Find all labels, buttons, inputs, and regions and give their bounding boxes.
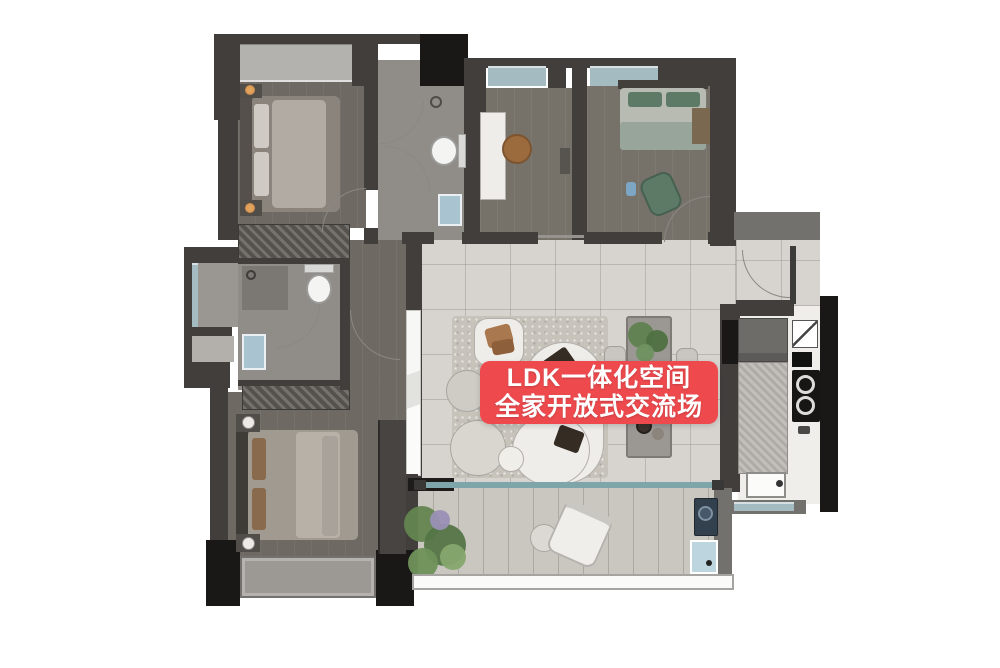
wall <box>736 300 794 316</box>
master-bed-pillow <box>252 488 266 530</box>
master-bed-throw <box>322 436 338 536</box>
wall <box>572 64 587 240</box>
wall <box>340 262 350 390</box>
table-lamp <box>245 85 255 95</box>
study-window <box>488 66 546 86</box>
mirror-panel <box>406 310 421 476</box>
wall <box>364 228 378 244</box>
toilet-tank <box>304 264 334 273</box>
master-bed-headboard <box>236 428 248 542</box>
second-bed-pillow <box>254 104 269 148</box>
fridge <box>738 318 788 362</box>
burner <box>796 375 815 394</box>
desk <box>480 112 506 200</box>
ac-platform-window <box>192 263 198 327</box>
sliding-door-track <box>424 482 716 488</box>
wall <box>402 232 434 244</box>
kitchen-counter <box>738 362 788 474</box>
table-lamp <box>242 416 255 429</box>
master-bay-window <box>240 556 376 598</box>
wall <box>184 362 230 388</box>
faucet <box>706 560 712 566</box>
wall <box>184 327 232 336</box>
balcony-plant <box>430 510 450 530</box>
track-cap <box>414 480 426 490</box>
wall <box>210 388 228 544</box>
bathroom-sink <box>438 194 462 226</box>
shelf <box>560 148 570 174</box>
wall <box>214 34 240 120</box>
dinnerware <box>652 428 664 440</box>
wall <box>708 232 736 244</box>
second-bed-pillow <box>254 152 269 196</box>
guest-nightstand <box>692 108 710 144</box>
toilet <box>306 274 332 304</box>
label-banner: LDK一体化空间 全家开放式交流场 <box>480 361 718 424</box>
hallway-cabinet <box>378 420 406 554</box>
shower-head-icon <box>246 270 256 280</box>
toilet <box>430 136 458 166</box>
microwave <box>792 352 812 367</box>
slippers <box>626 182 636 196</box>
washer-door <box>698 506 713 521</box>
balcony-plant <box>440 544 466 570</box>
bathroom-sink <box>242 334 266 370</box>
master-bedroom-wardrobe <box>242 384 350 410</box>
ac-platform <box>192 263 238 327</box>
balcony-railing <box>412 574 734 590</box>
faucet <box>776 480 783 487</box>
wall <box>464 58 480 240</box>
shower-head-icon <box>430 96 442 108</box>
wall <box>462 232 538 244</box>
wall <box>584 232 662 244</box>
burner <box>796 396 815 415</box>
wall <box>364 40 378 190</box>
side-table <box>498 446 524 472</box>
wall <box>710 58 736 246</box>
toilet-tank <box>458 134 466 168</box>
wall <box>548 60 566 88</box>
track-cap <box>712 480 724 490</box>
dining-plant <box>636 344 654 362</box>
wall <box>420 34 468 86</box>
second-bed-blanket <box>272 100 326 208</box>
laundry-sink <box>690 540 718 574</box>
wall <box>218 118 238 240</box>
wall <box>206 540 240 606</box>
wall <box>238 380 350 386</box>
entry-door-leaf <box>790 246 796 304</box>
second-bed-headboard <box>240 98 252 210</box>
side-niche <box>192 336 234 362</box>
study-sliding-door <box>538 235 584 238</box>
master-bed-pillow <box>252 438 266 480</box>
banner-line-1: LDK一体化空间 <box>507 364 691 393</box>
table-lamp <box>242 537 255 550</box>
wall <box>184 247 238 263</box>
kitchen-window <box>734 502 794 511</box>
wall <box>820 296 838 512</box>
banner-line-2: 全家开放式交流场 <box>495 393 703 422</box>
kitchen-fixture <box>798 426 810 434</box>
corner-cabinet <box>792 320 818 348</box>
bay-window-second-bedroom <box>240 43 366 83</box>
table-lamp <box>245 203 255 213</box>
guest-bed-pillow <box>628 92 662 107</box>
guest-bed-pillow <box>666 92 700 107</box>
floorplan-canvas: LDK一体化空间 全家开放式交流场 <box>0 0 1000 668</box>
coffee-table <box>450 420 506 476</box>
kitchen-pass-through <box>722 320 738 364</box>
wall <box>734 212 820 240</box>
desk-chair <box>502 134 532 164</box>
